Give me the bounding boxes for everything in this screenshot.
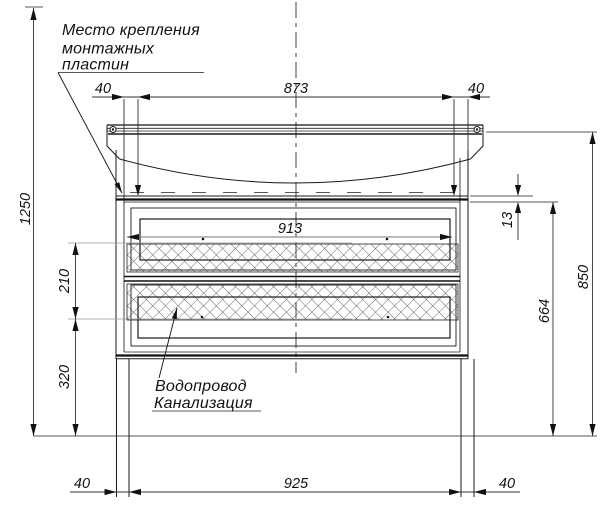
dimension-inner-width: 913 xyxy=(127,221,452,240)
dim-cabinet-height: 664 xyxy=(537,299,553,323)
dim-bottom-span: 925 xyxy=(284,476,309,492)
dim-top-right: 40 xyxy=(468,81,484,97)
dim-top-span: 873 xyxy=(284,81,308,97)
dimension-top: 40 873 40 xyxy=(92,81,490,196)
dim-bottom-left: 40 xyxy=(74,476,90,492)
note-plumbing-line1: Водопровод xyxy=(155,378,247,395)
dim-bottom-right: 40 xyxy=(499,476,515,492)
drawer-upper xyxy=(127,208,458,272)
mounting-plate-left-arrow-icon xyxy=(135,185,141,196)
dimension-bottom: 40 925 40 xyxy=(70,476,520,495)
dimension-right: 13 664 850 xyxy=(470,132,597,436)
mounting-plate-right-arrow-icon xyxy=(451,185,457,196)
note-mounting-plates: Место крепления монтажных пластин xyxy=(58,22,204,193)
dim-overall-height: 1250 xyxy=(18,193,34,225)
dim-plumbing-zone-height: 320 xyxy=(57,365,73,389)
dim-rail-thickness: 13 xyxy=(500,212,516,228)
drawer-divider xyxy=(124,277,460,282)
note-plumbing: Водопровод Канализация xyxy=(152,308,261,412)
basin-curve xyxy=(120,159,471,183)
dim-inner-width: 913 xyxy=(278,221,302,237)
note-mounting-line1: Место крепления xyxy=(62,22,200,39)
left-fixing-clip-dot xyxy=(112,128,114,130)
countertop xyxy=(107,125,483,183)
dim-worktop-height: 850 xyxy=(576,265,592,289)
technical-drawing-page: 40 873 40 913 1250 210 320 13 xyxy=(0,0,600,512)
right-fixing-clip-dot xyxy=(476,128,478,130)
vanity-installation-drawing: 40 873 40 913 1250 210 320 13 xyxy=(0,0,600,512)
note-mounting-line2: монтажных xyxy=(62,41,155,58)
dim-top-left: 40 xyxy=(95,81,111,97)
hatch-zone-upper xyxy=(127,244,458,272)
dim-hatch-zone-height: 210 xyxy=(57,269,73,294)
note-mounting-line3: пластин xyxy=(62,57,129,74)
note-plumbing-line2: Канализация xyxy=(154,395,253,412)
